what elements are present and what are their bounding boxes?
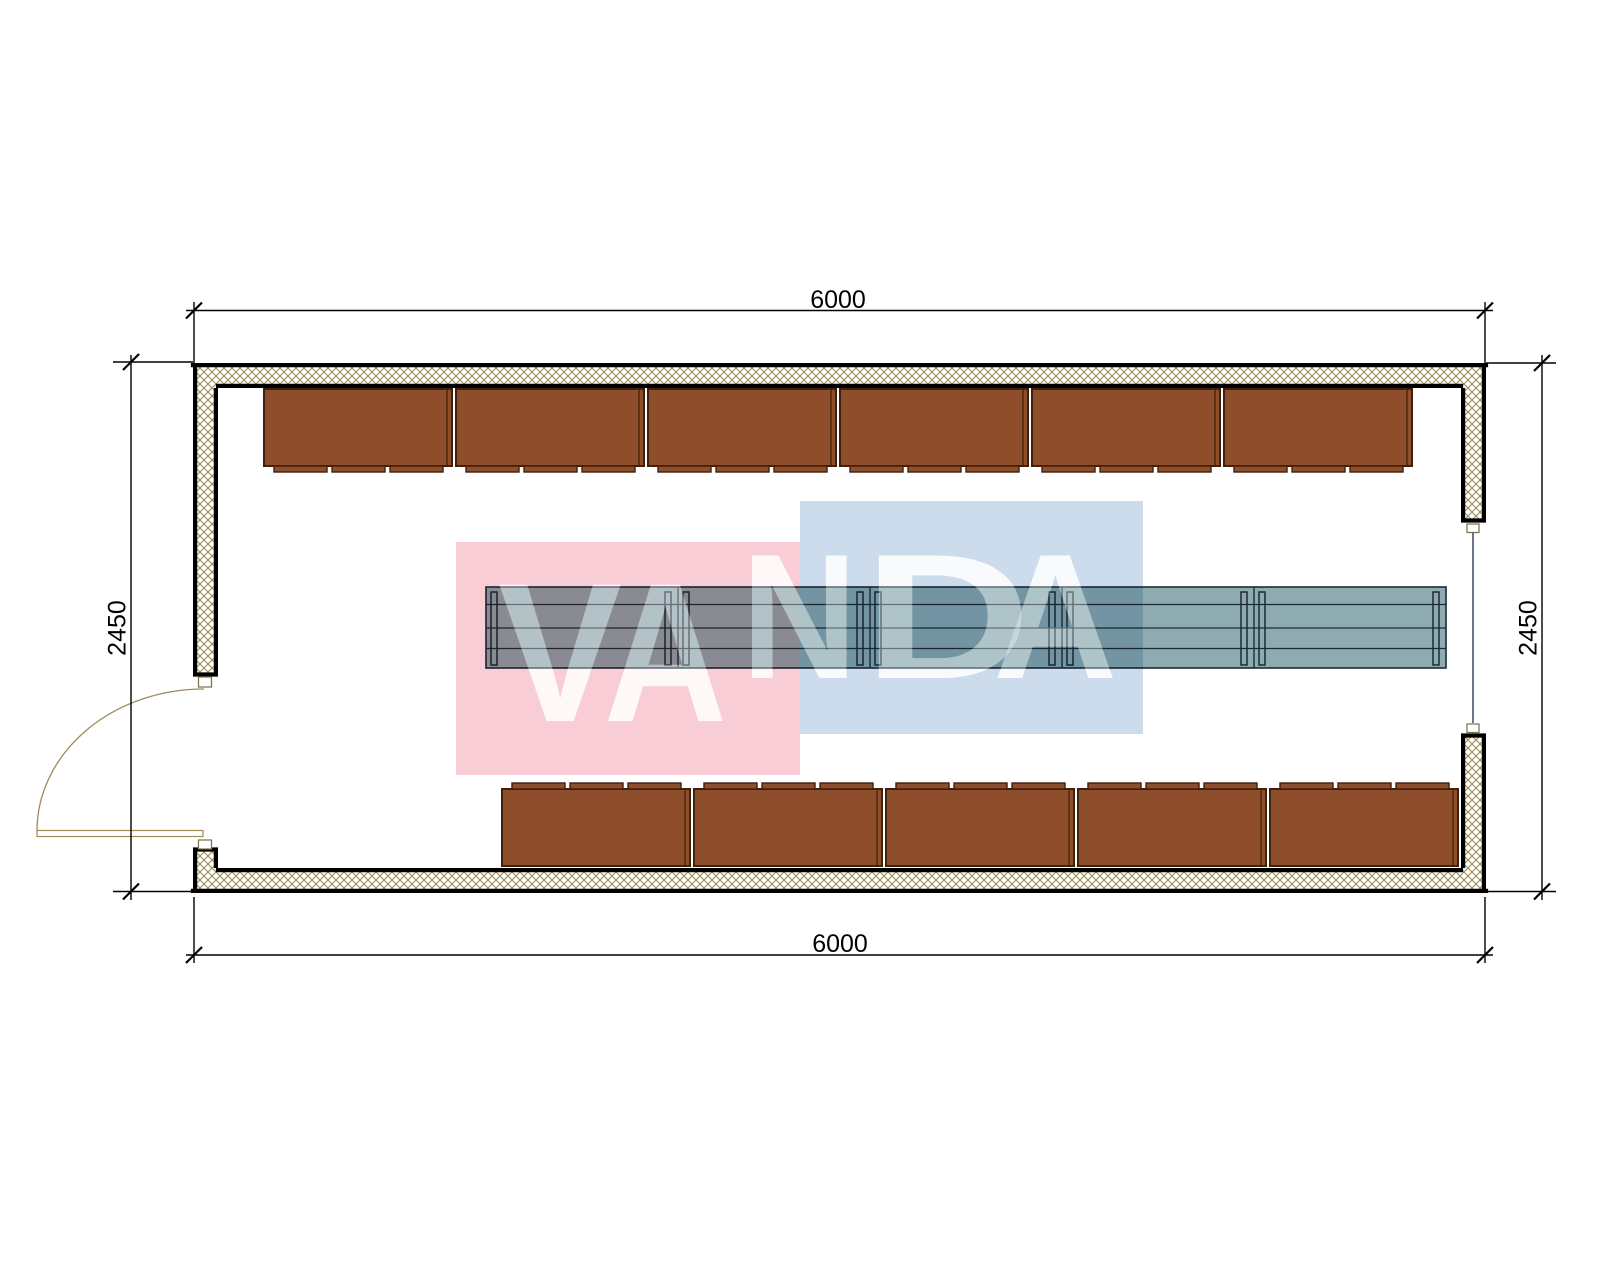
- svg-text:2450: 2450: [104, 600, 132, 656]
- svg-text:6000: 6000: [810, 286, 866, 314]
- svg-text:6000: 6000: [812, 930, 868, 958]
- svg-text:2450: 2450: [1515, 600, 1543, 656]
